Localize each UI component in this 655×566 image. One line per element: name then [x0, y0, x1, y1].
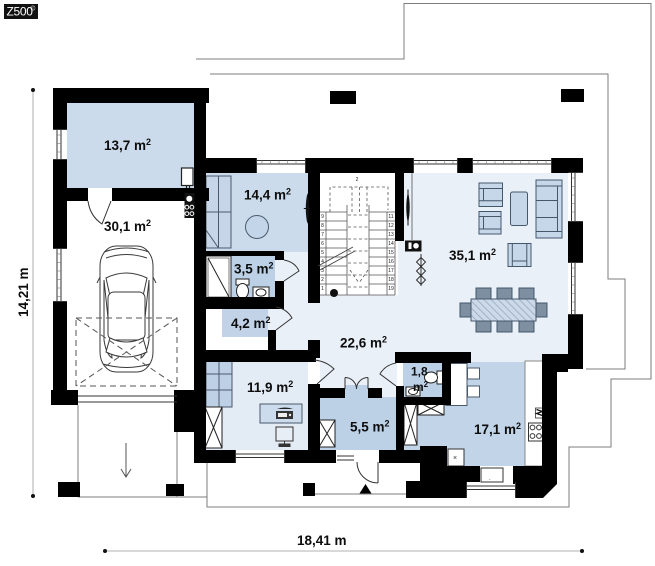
svg-text:×: × — [453, 455, 457, 462]
svg-text:18,41 m: 18,41 m — [297, 533, 347, 548]
svg-text:3: 3 — [321, 268, 324, 274]
svg-text:14: 14 — [388, 241, 394, 247]
svg-text:2: 2 — [321, 277, 324, 283]
svg-text:30,1 m2: 30,1 m2 — [104, 218, 151, 234]
svg-text:5: 5 — [321, 250, 324, 256]
svg-text:13: 13 — [388, 232, 394, 238]
svg-text:12: 12 — [388, 223, 394, 229]
svg-text:2: 2 — [356, 177, 359, 183]
svg-text:35,1 m2: 35,1 m2 — [449, 247, 496, 263]
svg-text:8: 8 — [321, 223, 324, 229]
svg-text:Z500: Z500 — [7, 5, 34, 19]
svg-text:22,6 m2: 22,6 m2 — [340, 335, 387, 351]
svg-text:18: 18 — [388, 277, 394, 283]
svg-text:5,5 m2: 5,5 m2 — [350, 419, 390, 435]
svg-text:1: 1 — [321, 286, 324, 292]
svg-text:©: © — [31, 5, 36, 13]
svg-text:9: 9 — [321, 214, 324, 220]
svg-text:4: 4 — [321, 259, 324, 265]
svg-text:3,5 m2: 3,5 m2 — [234, 261, 274, 277]
svg-text:16: 16 — [388, 259, 394, 265]
svg-text:6: 6 — [321, 241, 324, 247]
svg-text:7: 7 — [321, 232, 324, 238]
svg-text:17: 17 — [388, 268, 394, 274]
svg-text:13,7 m2: 13,7 m2 — [104, 137, 151, 153]
svg-text:1,8: 1,8 — [411, 365, 428, 379]
svg-text:14,4 m2: 14,4 m2 — [244, 187, 291, 203]
svg-text:19: 19 — [388, 286, 394, 292]
svg-text:15: 15 — [388, 250, 394, 256]
svg-text:17,1 m2: 17,1 m2 — [474, 421, 521, 437]
svg-text:11,9 m2: 11,9 m2 — [247, 379, 293, 395]
svg-text:14,21 m: 14,21 m — [16, 267, 31, 317]
svg-text:11: 11 — [388, 214, 393, 220]
svg-text:4,2 m2: 4,2 m2 — [231, 315, 271, 331]
